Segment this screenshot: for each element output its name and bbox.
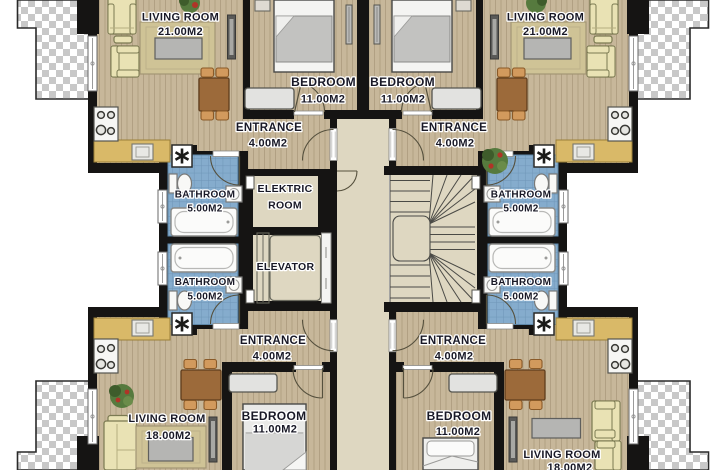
- svg-text:LIVING ROOM: LIVING ROOM: [507, 12, 584, 24]
- svg-text:LIVING ROOM: LIVING ROOM: [142, 12, 219, 24]
- svg-text:18.00M2: 18.00M2: [146, 430, 191, 442]
- svg-text:ELEVATOR: ELEVATOR: [257, 261, 315, 273]
- svg-text:LIVING ROOM: LIVING ROOM: [128, 413, 205, 425]
- svg-text:21.00M2: 21.00M2: [523, 26, 568, 38]
- svg-text:BEDROOM: BEDROOM: [291, 75, 356, 89]
- svg-text:ENTRANCE: ENTRANCE: [421, 122, 487, 134]
- svg-text:BATHROOM: BATHROOM: [491, 277, 552, 288]
- svg-text:18.00M2: 18.00M2: [548, 462, 593, 470]
- svg-text:ELEKTRIC: ELEKTRIC: [258, 183, 313, 195]
- svg-text:BATHROOM: BATHROOM: [175, 277, 236, 288]
- svg-text:11.00M2: 11.00M2: [436, 426, 480, 438]
- svg-text:21.00M2: 21.00M2: [158, 26, 203, 38]
- svg-text:5.00M2: 5.00M2: [187, 204, 222, 215]
- svg-text:LIVING ROOM: LIVING ROOM: [523, 449, 600, 461]
- svg-text:4.00M2: 4.00M2: [249, 138, 288, 150]
- svg-text:11.00M2: 11.00M2: [381, 94, 425, 106]
- svg-text:BEDROOM: BEDROOM: [427, 409, 492, 423]
- svg-text:5.00M2: 5.00M2: [503, 204, 538, 215]
- svg-text:5.00M2: 5.00M2: [187, 292, 222, 303]
- svg-text:11.00M2: 11.00M2: [301, 94, 345, 106]
- svg-text:11.00M2: 11.00M2: [253, 424, 297, 436]
- svg-text:ENTRANCE: ENTRANCE: [236, 122, 302, 134]
- svg-text:BATHROOM: BATHROOM: [491, 190, 552, 201]
- svg-text:ENTRANCE: ENTRANCE: [420, 335, 486, 347]
- svg-text:BEDROOM: BEDROOM: [370, 75, 435, 89]
- svg-text:BATHROOM: BATHROOM: [175, 190, 236, 201]
- svg-text:5.00M2: 5.00M2: [503, 292, 538, 303]
- svg-text:4.00M2: 4.00M2: [253, 351, 292, 363]
- svg-text:ROOM: ROOM: [268, 200, 302, 212]
- svg-text:4.00M2: 4.00M2: [435, 351, 474, 363]
- svg-text:4.00M2: 4.00M2: [436, 138, 475, 150]
- svg-text:BEDROOM: BEDROOM: [242, 409, 307, 423]
- svg-text:ENTRANCE: ENTRANCE: [240, 335, 306, 347]
